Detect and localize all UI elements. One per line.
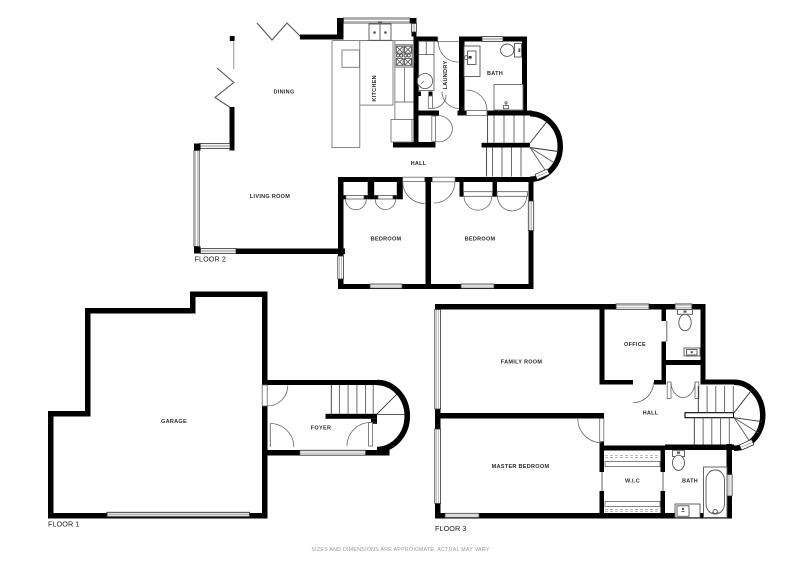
svg-text:MASTER BEDROOM: MASTER BEDROOM	[492, 464, 550, 470]
svg-text:HALL: HALL	[643, 410, 659, 416]
svg-text:FAMILY ROOM: FAMILY ROOM	[501, 359, 543, 365]
svg-text:FLOOR 2: FLOOR 2	[195, 255, 226, 264]
svg-text:OFFICE: OFFICE	[624, 342, 646, 348]
svg-text:GARAGE: GARAGE	[161, 419, 187, 425]
svg-text:LIVING ROOM: LIVING ROOM	[250, 194, 290, 200]
svg-text:DINING: DINING	[273, 89, 294, 95]
svg-text:BATH: BATH	[682, 479, 698, 485]
svg-text:BEDROOM: BEDROOM	[465, 236, 496, 242]
svg-text:KITCHEN: KITCHEN	[372, 75, 378, 102]
svg-text:FOYER: FOYER	[311, 425, 331, 431]
svg-text:LAUNDRY: LAUNDRY	[443, 61, 449, 90]
svg-text:FLOOR 3: FLOOR 3	[435, 524, 466, 533]
svg-text:SIZES AND DIMENSIONS ARE APPRO: SIZES AND DIMENSIONS ARE APPROXIMATE, AC…	[311, 547, 490, 553]
svg-text:BEDROOM: BEDROOM	[371, 236, 402, 242]
svg-text:BATH: BATH	[487, 71, 503, 77]
svg-text:FLOOR 1: FLOOR 1	[48, 520, 79, 529]
svg-text:HALL: HALL	[411, 161, 427, 167]
svg-text:W.I.C: W.I.C	[625, 479, 640, 485]
